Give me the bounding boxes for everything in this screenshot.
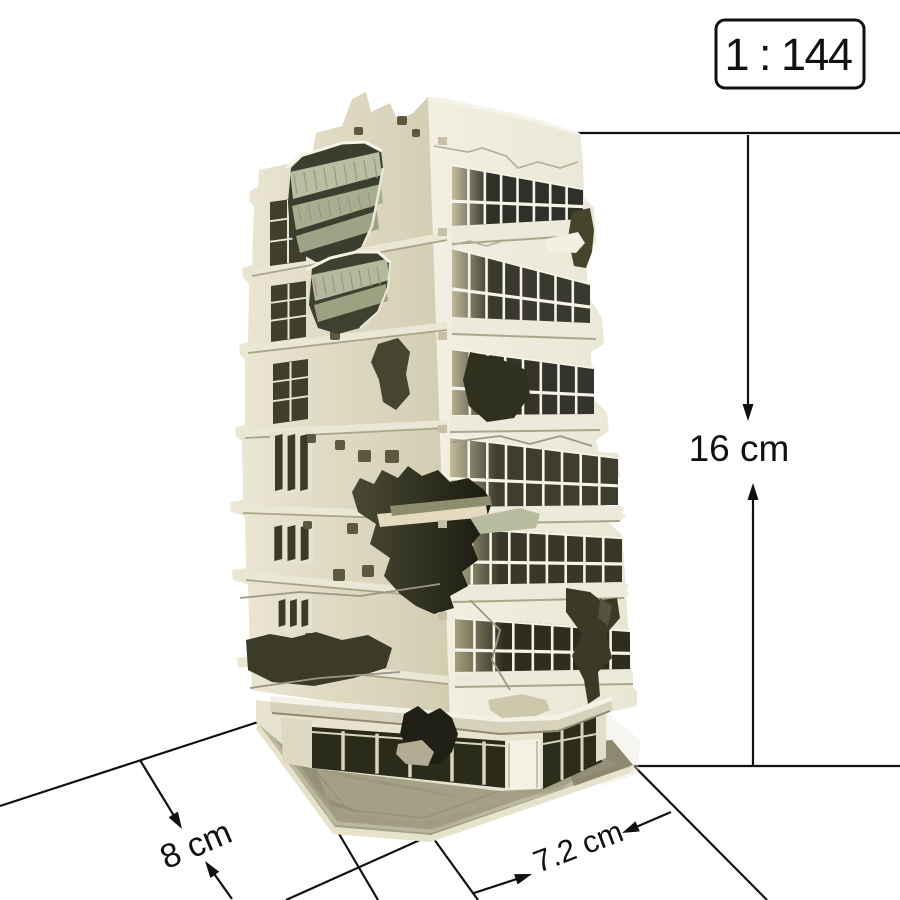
svg-text:1 : 144: 1 : 144 (724, 29, 852, 80)
svg-text:16 cm: 16 cm (689, 428, 790, 469)
